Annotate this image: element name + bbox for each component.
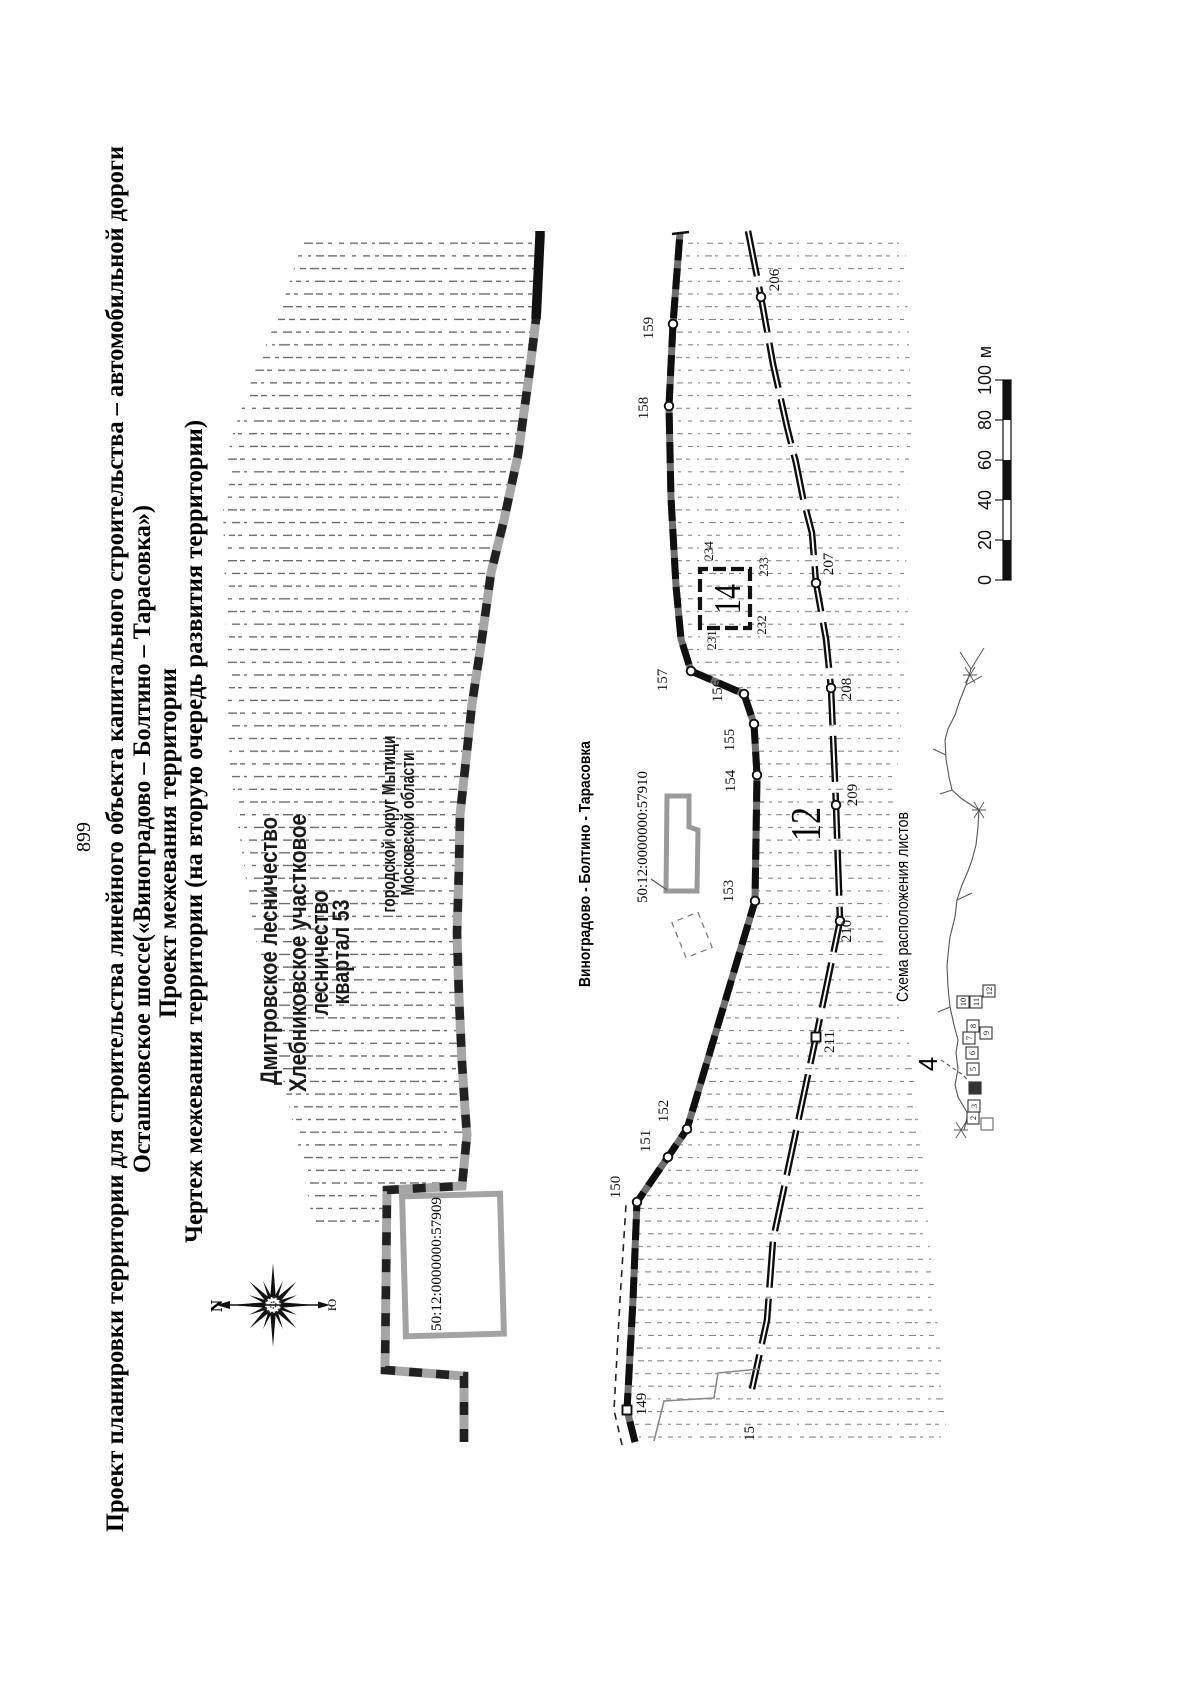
svg-text:Московской области: Московской области [398, 753, 418, 896]
svg-text:Виноградово - Болтино - Тарасо: Виноградово - Болтино - Тарасовка [577, 741, 594, 987]
svg-text:60: 60 [975, 450, 995, 470]
svg-text:231: 231 [704, 630, 719, 650]
svg-text:6: 6 [967, 1051, 977, 1055]
svg-text:городской округ Мытищи: городской округ Мытищи [379, 736, 399, 913]
svg-text:0: 0 [975, 575, 995, 585]
svg-text:14: 14 [707, 584, 749, 614]
svg-text:м: м [975, 346, 995, 358]
svg-text:50:12:0000000:57910: 50:12:0000000:57910 [635, 771, 651, 903]
svg-text:Проект планировки территории д: Проект планировки территории для строите… [102, 146, 129, 1532]
svg-text:40: 40 [975, 490, 995, 510]
svg-text:207: 207 [821, 552, 837, 575]
svg-text:15: 15 [742, 1426, 758, 1441]
svg-text:149: 149 [634, 1393, 650, 1416]
svg-text:232: 232 [754, 615, 769, 635]
svg-text:N: N [207, 1299, 226, 1312]
svg-text:899: 899 [73, 822, 95, 852]
svg-text:11: 11 [971, 998, 981, 1006]
svg-text:9: 9 [981, 1031, 991, 1035]
svg-text:159: 159 [641, 317, 657, 340]
svg-text:210: 210 [839, 920, 855, 943]
svg-text:4: 4 [913, 1057, 943, 1071]
svg-text:234: 234 [701, 541, 716, 561]
svg-text:208: 208 [839, 678, 855, 701]
svg-text:153: 153 [721, 880, 737, 903]
svg-text:Ю: Ю [325, 1299, 339, 1311]
svg-text:Дмитровское лесничество: Дмитровское лесничество [256, 817, 283, 1085]
svg-text:211: 211 [822, 1031, 838, 1053]
svg-text:155: 155 [722, 729, 738, 752]
svg-text:209: 209 [845, 784, 861, 807]
svg-text:5: 5 [968, 1067, 978, 1071]
svg-text:12: 12 [784, 807, 830, 841]
svg-text:158: 158 [636, 397, 652, 420]
svg-text:206: 206 [767, 268, 783, 291]
svg-text:154: 154 [723, 769, 739, 792]
svg-text:Чертеж межевания территории (н: Чертеж межевания территории (на вторую о… [181, 420, 208, 1243]
svg-text:20: 20 [975, 530, 995, 550]
svg-text:2: 2 [968, 1116, 978, 1120]
svg-text:150: 150 [608, 1176, 624, 1199]
svg-text:152: 152 [656, 1100, 672, 1123]
svg-text:Проект межевания территории: Проект межевания территории [155, 668, 182, 1018]
svg-text:Осташковское шоссе(«Виноградов: Осташковское шоссе(«Виноградово – Болтин… [129, 505, 156, 1173]
svg-text:156: 156 [710, 679, 726, 702]
svg-text:80: 80 [975, 410, 995, 430]
svg-text:10: 10 [958, 998, 968, 1007]
svg-text:квартал 53: квартал 53 [328, 900, 355, 1005]
svg-text:100: 100 [975, 365, 995, 395]
svg-text:Схема расположения листов: Схема расположения листов [893, 812, 912, 1002]
svg-text:50:12:0000000:57909: 50:12:0000000:57909 [429, 1197, 445, 1331]
svg-text:3: 3 [969, 1104, 979, 1108]
svg-text:151: 151 [638, 1130, 654, 1153]
svg-text:8: 8 [968, 1024, 978, 1028]
svg-text:7: 7 [964, 1036, 974, 1040]
svg-text:233: 233 [756, 557, 771, 577]
svg-text:157: 157 [655, 668, 671, 691]
svg-text:12: 12 [984, 987, 994, 996]
